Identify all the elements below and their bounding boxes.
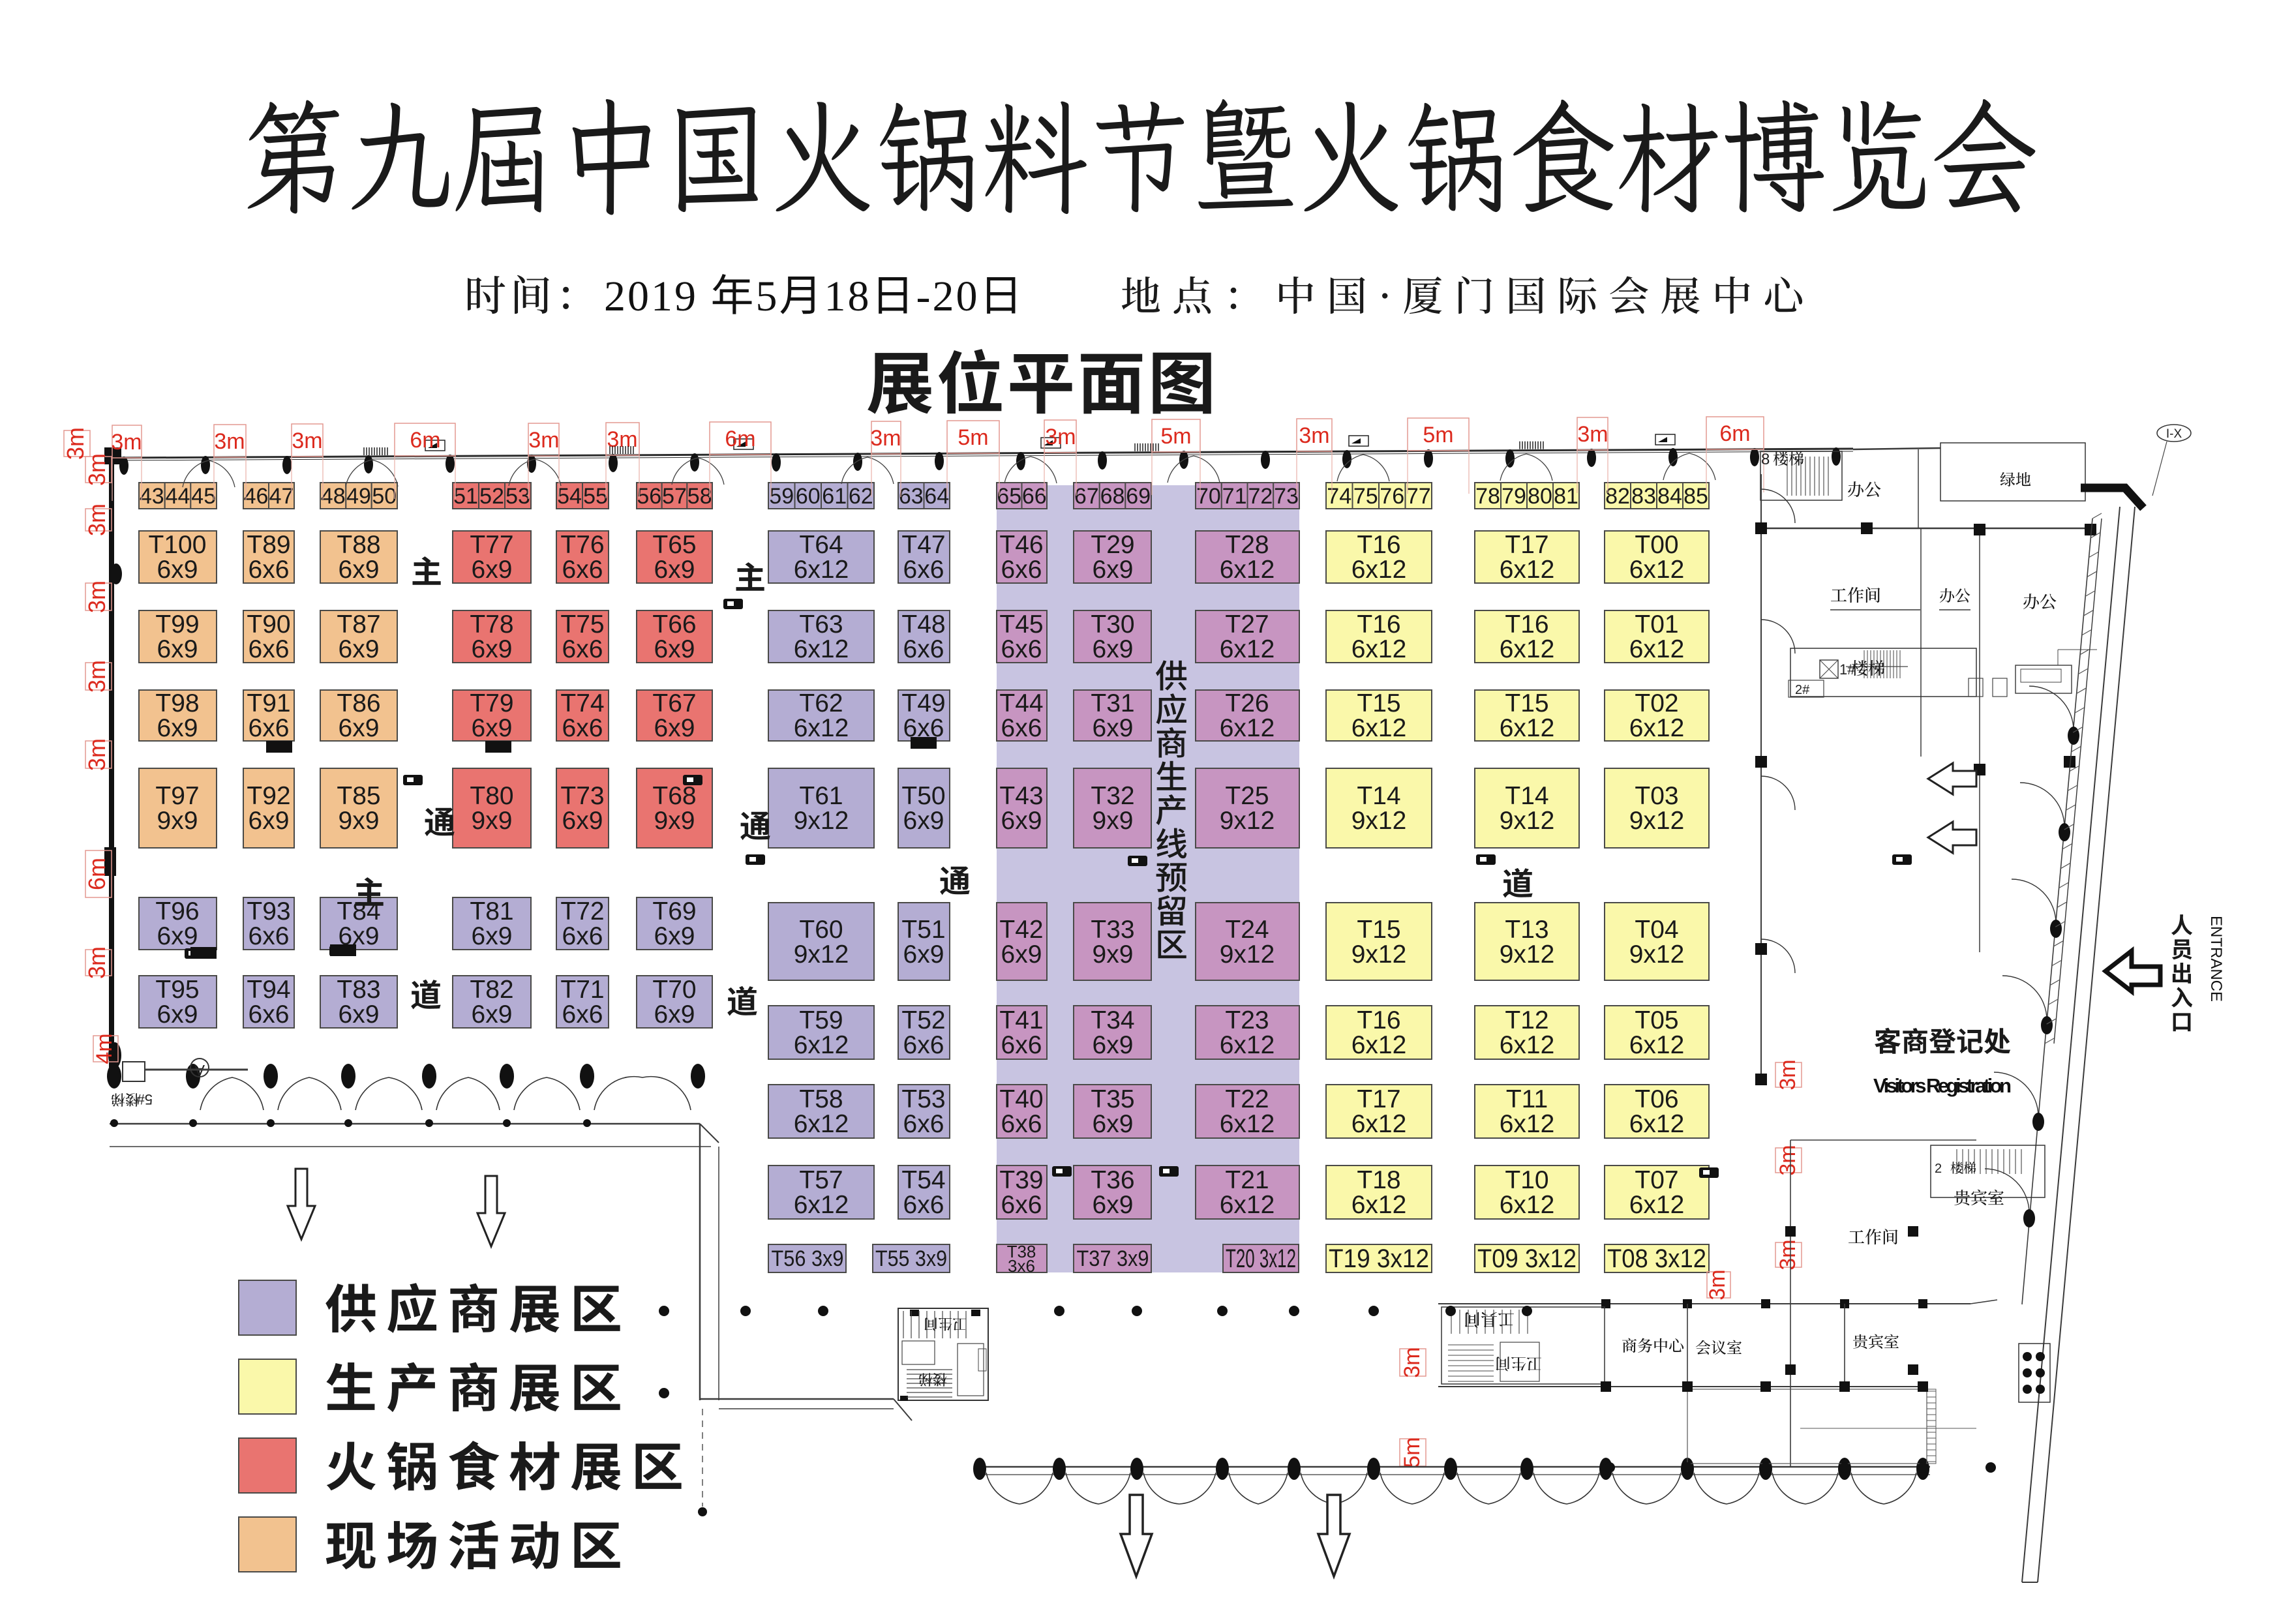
svg-text:T91: T91 — [247, 689, 290, 717]
svg-text:6x12: 6x12 — [1220, 1191, 1275, 1219]
svg-text:1#: 1# — [1839, 661, 1856, 678]
svg-text:6x9: 6x9 — [1093, 556, 1134, 584]
svg-text:T84: T84 — [337, 897, 380, 925]
svg-text:T15: T15 — [1505, 689, 1548, 717]
svg-text:T63: T63 — [799, 610, 843, 639]
svg-text:T93: T93 — [247, 897, 290, 925]
svg-text:43: 43 — [140, 484, 164, 509]
svg-text:T12: T12 — [1505, 1006, 1548, 1034]
svg-text:59: 59 — [769, 484, 794, 509]
svg-text:77: 77 — [1406, 484, 1431, 509]
svg-text:6x12: 6x12 — [1500, 714, 1555, 742]
svg-text:6x6: 6x6 — [562, 556, 603, 584]
svg-text:T03: T03 — [1635, 782, 1678, 810]
svg-text:T09 3x12: T09 3x12 — [1477, 1244, 1577, 1273]
svg-text:T01: T01 — [1635, 610, 1678, 639]
svg-text:3m: 3m — [83, 946, 110, 979]
svg-text:T64: T64 — [799, 531, 843, 559]
svg-text:T00: T00 — [1635, 531, 1678, 559]
svg-text:6x9: 6x9 — [1093, 1191, 1134, 1219]
svg-text:6x6: 6x6 — [562, 1000, 603, 1029]
svg-text:6x6: 6x6 — [562, 635, 603, 663]
svg-text:T17: T17 — [1357, 1085, 1400, 1113]
svg-text:52: 52 — [479, 484, 504, 509]
svg-text:71: 71 — [1222, 484, 1247, 509]
svg-text:3m: 3m — [292, 429, 322, 453]
svg-text:T53: T53 — [901, 1085, 945, 1113]
svg-text:9x12: 9x12 — [1220, 807, 1275, 835]
svg-text:66: 66 — [1022, 484, 1047, 509]
svg-text:T14: T14 — [1505, 782, 1548, 810]
svg-text:63: 63 — [899, 484, 924, 509]
svg-text:T05: T05 — [1635, 1006, 1678, 1034]
svg-text:T24: T24 — [1225, 916, 1269, 944]
svg-text:T06: T06 — [1635, 1085, 1678, 1113]
svg-text:74: 74 — [1327, 484, 1351, 509]
svg-text:6m: 6m — [410, 428, 440, 453]
svg-text:6x9: 6x9 — [472, 556, 513, 584]
svg-text:T15: T15 — [1357, 689, 1400, 717]
svg-text:6x9: 6x9 — [157, 556, 198, 584]
svg-text:T88: T88 — [337, 531, 380, 559]
svg-text:9x9: 9x9 — [654, 807, 695, 835]
svg-text:6x12: 6x12 — [1351, 714, 1407, 742]
svg-text:6x6: 6x6 — [1001, 635, 1042, 663]
svg-text:T45: T45 — [999, 610, 1043, 639]
svg-text:T70: T70 — [652, 976, 696, 1004]
svg-text:5m: 5m — [1160, 424, 1191, 449]
svg-text:6x9: 6x9 — [654, 922, 695, 950]
svg-text:T60: T60 — [799, 916, 843, 944]
svg-text:T36: T36 — [1091, 1166, 1134, 1194]
svg-text:6x12: 6x12 — [1351, 635, 1407, 663]
svg-text:6x9: 6x9 — [1093, 635, 1134, 663]
svg-text:6x6: 6x6 — [903, 635, 944, 663]
svg-text:6x9: 6x9 — [654, 635, 695, 663]
svg-text:5m: 5m — [1423, 423, 1453, 447]
svg-text:T75: T75 — [560, 610, 604, 639]
svg-text:6x9: 6x9 — [903, 940, 944, 969]
svg-text:3m: 3m — [1299, 423, 1329, 448]
svg-text:T78: T78 — [470, 610, 513, 639]
svg-text:5m: 5m — [958, 425, 988, 450]
svg-text:73: 73 — [1274, 484, 1299, 509]
svg-text:T19 3x12: T19 3x12 — [1329, 1244, 1429, 1273]
svg-text:6x12: 6x12 — [1351, 1110, 1407, 1138]
svg-text:T90: T90 — [247, 610, 290, 639]
svg-text:6x9: 6x9 — [1093, 1110, 1134, 1138]
svg-text:3m: 3m — [1775, 1145, 1800, 1175]
svg-text:3m: 3m — [1400, 1347, 1425, 1377]
svg-text:6x12: 6x12 — [1629, 556, 1685, 584]
svg-text:6x9: 6x9 — [654, 556, 695, 584]
svg-text:75: 75 — [1353, 484, 1378, 509]
svg-text:T61: T61 — [799, 782, 843, 810]
svg-text:3m: 3m — [83, 453, 110, 486]
svg-text:54: 54 — [557, 484, 582, 509]
svg-text:6x12: 6x12 — [1629, 1031, 1685, 1059]
svg-text:T04: T04 — [1635, 916, 1678, 944]
svg-text:6x12: 6x12 — [794, 635, 849, 663]
svg-text:6x9: 6x9 — [157, 922, 198, 950]
svg-text:T71: T71 — [560, 976, 604, 1004]
svg-text:T67: T67 — [652, 689, 696, 717]
svg-text:3m: 3m — [83, 504, 110, 536]
svg-text:55: 55 — [583, 484, 608, 509]
svg-text:6x6: 6x6 — [249, 556, 290, 584]
svg-text:T47: T47 — [901, 531, 945, 559]
svg-text:T79: T79 — [470, 689, 513, 717]
svg-text:6x12: 6x12 — [1500, 1031, 1555, 1059]
svg-text:47: 47 — [269, 484, 294, 509]
svg-text:3m: 3m — [1705, 1269, 1730, 1300]
svg-text:T17: T17 — [1505, 531, 1548, 559]
svg-text:6x9: 6x9 — [1093, 714, 1134, 742]
svg-text:50: 50 — [372, 484, 397, 509]
svg-text:T26: T26 — [1225, 689, 1269, 717]
svg-text:T65: T65 — [652, 531, 696, 559]
svg-text:6x9: 6x9 — [1093, 1031, 1134, 1059]
svg-text:6x6: 6x6 — [1001, 1110, 1042, 1138]
svg-text:T97: T97 — [155, 782, 199, 810]
svg-text:6x12: 6x12 — [1220, 635, 1275, 663]
svg-text:T08 3x12: T08 3x12 — [1607, 1244, 1706, 1273]
svg-text:T34: T34 — [1091, 1006, 1134, 1034]
svg-text:46: 46 — [244, 484, 269, 509]
svg-text:3m: 3m — [870, 426, 901, 451]
svg-text:T46: T46 — [999, 531, 1043, 559]
svg-text:3m: 3m — [111, 430, 142, 455]
svg-text:6x12: 6x12 — [1220, 714, 1275, 742]
svg-text:T39: T39 — [999, 1166, 1043, 1194]
svg-text:6x9: 6x9 — [157, 635, 198, 663]
svg-text:72: 72 — [1248, 484, 1273, 509]
svg-text:T27: T27 — [1225, 610, 1269, 639]
svg-text:9x12: 9x12 — [794, 807, 849, 835]
svg-text:T20 3x12: T20 3x12 — [1226, 1244, 1296, 1273]
svg-text:9x9: 9x9 — [1093, 940, 1134, 969]
svg-text:6x6: 6x6 — [903, 1191, 944, 1219]
svg-text:6x6: 6x6 — [249, 714, 290, 742]
svg-text:6x6: 6x6 — [903, 556, 944, 584]
svg-text:T50: T50 — [901, 782, 945, 810]
svg-text:3m: 3m — [214, 429, 245, 454]
svg-text:T16: T16 — [1357, 531, 1400, 559]
svg-text:6x6: 6x6 — [562, 922, 603, 950]
svg-text:T81: T81 — [470, 897, 513, 925]
svg-text:6x6: 6x6 — [1001, 1031, 1042, 1059]
svg-text:9x12: 9x12 — [1629, 940, 1685, 969]
svg-text:6x9: 6x9 — [339, 1000, 380, 1029]
svg-text:67: 67 — [1074, 484, 1099, 509]
svg-text:9x12: 9x12 — [1351, 807, 1407, 835]
svg-text:Visitors Registration: Visitors Registration — [1873, 1074, 2012, 1097]
svg-text:9x12: 9x12 — [1351, 940, 1407, 969]
svg-text:T07: T07 — [1635, 1166, 1678, 1194]
svg-text:3m: 3m — [528, 428, 559, 453]
svg-text:T99: T99 — [155, 610, 199, 639]
svg-text:T89: T89 — [247, 531, 290, 559]
svg-text:T11: T11 — [1506, 1085, 1548, 1113]
svg-text:T31: T31 — [1091, 689, 1134, 717]
svg-text:82: 82 — [1605, 484, 1630, 509]
svg-text:T13: T13 — [1505, 916, 1548, 944]
svg-text:T44: T44 — [999, 689, 1043, 717]
svg-text:44: 44 — [166, 484, 190, 509]
svg-text:3m: 3m — [1775, 1059, 1800, 1090]
svg-text:49: 49 — [346, 484, 371, 509]
svg-text:48: 48 — [321, 484, 346, 509]
svg-text:3m: 3m — [1775, 1239, 1800, 1270]
svg-text:T55 3x9: T55 3x9 — [875, 1246, 947, 1271]
svg-text:6x6: 6x6 — [562, 714, 603, 742]
svg-text:T23: T23 — [1225, 1006, 1269, 1034]
svg-text:76: 76 — [1380, 484, 1404, 509]
svg-text:5m: 5m — [1400, 1437, 1425, 1467]
svg-text:6x9: 6x9 — [339, 556, 380, 584]
svg-text:6x12: 6x12 — [1629, 714, 1685, 742]
svg-text:T76: T76 — [560, 531, 604, 559]
svg-text:6x9: 6x9 — [472, 714, 513, 742]
svg-text:9x12: 9x12 — [1500, 940, 1555, 969]
svg-text:T33: T33 — [1091, 916, 1134, 944]
svg-text:T66: T66 — [652, 610, 696, 639]
svg-text:3m: 3m — [83, 580, 110, 613]
svg-text:6x6: 6x6 — [903, 1110, 944, 1138]
svg-text:8: 8 — [1761, 451, 1770, 468]
svg-text:9x12: 9x12 — [1629, 807, 1685, 835]
svg-text:6x9: 6x9 — [562, 807, 603, 835]
svg-text:T72: T72 — [560, 897, 604, 925]
svg-text:T95: T95 — [155, 976, 199, 1004]
svg-text:6x12: 6x12 — [1351, 1191, 1407, 1219]
svg-text:T73: T73 — [560, 782, 604, 810]
svg-text:T92: T92 — [247, 782, 290, 810]
svg-text:6x9: 6x9 — [157, 1000, 198, 1029]
svg-text:T83: T83 — [337, 976, 380, 1004]
svg-text:64: 64 — [924, 484, 949, 509]
svg-text:6x6: 6x6 — [1001, 714, 1042, 742]
svg-text:T14: T14 — [1357, 782, 1400, 810]
svg-text:9x9: 9x9 — [339, 807, 380, 835]
svg-text:6m: 6m — [83, 858, 110, 890]
svg-text:6m: 6m — [725, 427, 755, 451]
svg-text:80: 80 — [1528, 484, 1552, 509]
svg-text:2: 2 — [1935, 1162, 1942, 1176]
svg-text:6x9: 6x9 — [339, 635, 380, 663]
svg-text:9x12: 9x12 — [1220, 940, 1275, 969]
svg-text:T86: T86 — [337, 689, 380, 717]
svg-text:53: 53 — [506, 484, 530, 509]
svg-text:9x9: 9x9 — [1093, 807, 1134, 835]
svg-text:T98: T98 — [155, 689, 199, 717]
svg-text:57: 57 — [662, 484, 687, 509]
svg-text:6x6: 6x6 — [249, 1000, 290, 1029]
svg-text:6x9: 6x9 — [472, 635, 513, 663]
svg-text:T32: T32 — [1091, 782, 1134, 810]
svg-text:T41: T41 — [999, 1006, 1043, 1034]
svg-text:T15: T15 — [1357, 916, 1400, 944]
svg-text:6x12: 6x12 — [1351, 1031, 1407, 1059]
svg-text:2019 年5月18日-20日: 2019 年5月18日-20日 — [604, 273, 1024, 320]
svg-text:6x12: 6x12 — [794, 1031, 849, 1059]
svg-text:6x6: 6x6 — [249, 635, 290, 663]
svg-text:84: 84 — [1657, 484, 1682, 509]
svg-text:3m: 3m — [1577, 422, 1608, 447]
svg-text:6x12: 6x12 — [1629, 1191, 1685, 1219]
svg-text:T42: T42 — [999, 916, 1043, 944]
svg-text:6x12: 6x12 — [794, 1110, 849, 1138]
svg-text:T16: T16 — [1357, 610, 1400, 639]
svg-text:65: 65 — [997, 484, 1021, 509]
svg-text:T02: T02 — [1635, 689, 1678, 717]
svg-text:6x12: 6x12 — [794, 1191, 849, 1219]
svg-text:6x9: 6x9 — [654, 1000, 695, 1029]
svg-text:68: 68 — [1100, 484, 1125, 509]
svg-text:83: 83 — [1631, 484, 1656, 509]
svg-text:T18: T18 — [1357, 1166, 1400, 1194]
svg-text:T37 3x9: T37 3x9 — [1077, 1246, 1149, 1271]
svg-text:6x9: 6x9 — [472, 1000, 513, 1029]
svg-text:6x6: 6x6 — [1001, 1191, 1042, 1219]
svg-text:9x9: 9x9 — [157, 807, 198, 835]
svg-text:56: 56 — [637, 484, 661, 509]
svg-text:T85: T85 — [337, 782, 380, 810]
svg-text:6x12: 6x12 — [794, 714, 849, 742]
svg-text:6x12: 6x12 — [1351, 556, 1407, 584]
svg-text:T57: T57 — [799, 1166, 843, 1194]
svg-text:T30: T30 — [1091, 610, 1134, 639]
svg-text:78: 78 — [1475, 484, 1500, 509]
svg-text:9x12: 9x12 — [794, 940, 849, 969]
svg-text:T21: T21 — [1225, 1166, 1269, 1194]
svg-text:6x12: 6x12 — [794, 556, 849, 584]
svg-text:6x9: 6x9 — [249, 807, 290, 835]
svg-text:T22: T22 — [1225, 1085, 1269, 1113]
svg-text:6x9: 6x9 — [339, 714, 380, 742]
svg-text:6x12: 6x12 — [1629, 1110, 1685, 1138]
svg-text:T87: T87 — [337, 610, 380, 639]
svg-text:T59: T59 — [799, 1006, 843, 1034]
svg-text:69: 69 — [1126, 484, 1151, 509]
svg-text:3m: 3m — [83, 660, 110, 693]
svg-text:T77: T77 — [470, 531, 513, 559]
svg-text:T52: T52 — [901, 1006, 945, 1034]
svg-text:51: 51 — [453, 484, 478, 509]
svg-text:6x12: 6x12 — [1500, 556, 1555, 584]
svg-text:3m: 3m — [83, 738, 110, 771]
svg-text:6x9: 6x9 — [654, 714, 695, 742]
svg-text:T58: T58 — [799, 1085, 843, 1113]
svg-text:6x9: 6x9 — [903, 807, 944, 835]
svg-text:ENTRANCE: ENTRANCE — [2207, 916, 2225, 1002]
svg-text:61: 61 — [822, 484, 847, 509]
svg-text:3m: 3m — [1045, 425, 1076, 449]
svg-text:58: 58 — [687, 484, 712, 509]
svg-text:6x9: 6x9 — [1001, 807, 1042, 835]
svg-text:6x6: 6x6 — [1001, 556, 1042, 584]
svg-text:6x12: 6x12 — [1629, 635, 1685, 663]
svg-text:3x6: 3x6 — [1008, 1256, 1035, 1276]
svg-text:T82: T82 — [470, 976, 513, 1004]
svg-text:T43: T43 — [999, 782, 1043, 810]
svg-text:T94: T94 — [247, 976, 290, 1004]
svg-text:T10: T10 — [1505, 1166, 1548, 1194]
svg-text:T68: T68 — [652, 782, 696, 810]
svg-text:9x9: 9x9 — [472, 807, 513, 835]
svg-text:T96: T96 — [155, 897, 199, 925]
svg-text:6m: 6m — [1719, 421, 1750, 446]
svg-text:79: 79 — [1502, 484, 1526, 509]
svg-text:T100: T100 — [149, 531, 207, 559]
svg-text:6x12: 6x12 — [1500, 635, 1555, 663]
svg-text:T29: T29 — [1091, 531, 1134, 559]
svg-text:T16: T16 — [1357, 1006, 1400, 1034]
svg-text:62: 62 — [849, 484, 873, 509]
svg-text:6x6: 6x6 — [903, 1031, 944, 1059]
svg-text:6x12: 6x12 — [1500, 1110, 1555, 1138]
svg-text:85: 85 — [1683, 484, 1708, 509]
svg-text:6x12: 6x12 — [1220, 1110, 1275, 1138]
svg-text:6x9: 6x9 — [157, 714, 198, 742]
svg-text:9x12: 9x12 — [1500, 807, 1555, 835]
svg-text:T80: T80 — [470, 782, 513, 810]
svg-text:T54: T54 — [901, 1166, 945, 1194]
svg-text:5#: 5# — [136, 1091, 153, 1107]
svg-text:T74: T74 — [560, 689, 604, 717]
svg-text:6x6: 6x6 — [249, 922, 290, 950]
svg-text:T16: T16 — [1505, 610, 1548, 639]
svg-text:T51: T51 — [901, 916, 945, 944]
svg-text:T69: T69 — [652, 897, 696, 925]
svg-text:T49: T49 — [901, 689, 945, 717]
svg-text:I-X: I-X — [2166, 427, 2182, 441]
svg-text:4m: 4m — [92, 1033, 117, 1064]
svg-text:T28: T28 — [1225, 531, 1269, 559]
svg-text:81: 81 — [1554, 484, 1578, 509]
svg-text:T35: T35 — [1091, 1085, 1134, 1113]
svg-text:T48: T48 — [901, 610, 945, 639]
svg-text:T62: T62 — [799, 689, 843, 717]
svg-text:T56 3x9: T56 3x9 — [772, 1246, 844, 1271]
svg-text:6x12: 6x12 — [1220, 556, 1275, 584]
svg-text:6x12: 6x12 — [1500, 1191, 1555, 1219]
svg-text:T40: T40 — [999, 1085, 1043, 1113]
svg-text:6x9: 6x9 — [1001, 940, 1042, 969]
svg-text:45: 45 — [191, 484, 216, 509]
svg-text:6x12: 6x12 — [1220, 1031, 1275, 1059]
svg-text:6x9: 6x9 — [472, 922, 513, 950]
svg-text:2#: 2# — [1795, 683, 1810, 697]
svg-text:60: 60 — [796, 484, 821, 509]
svg-text:T25: T25 — [1225, 782, 1269, 810]
